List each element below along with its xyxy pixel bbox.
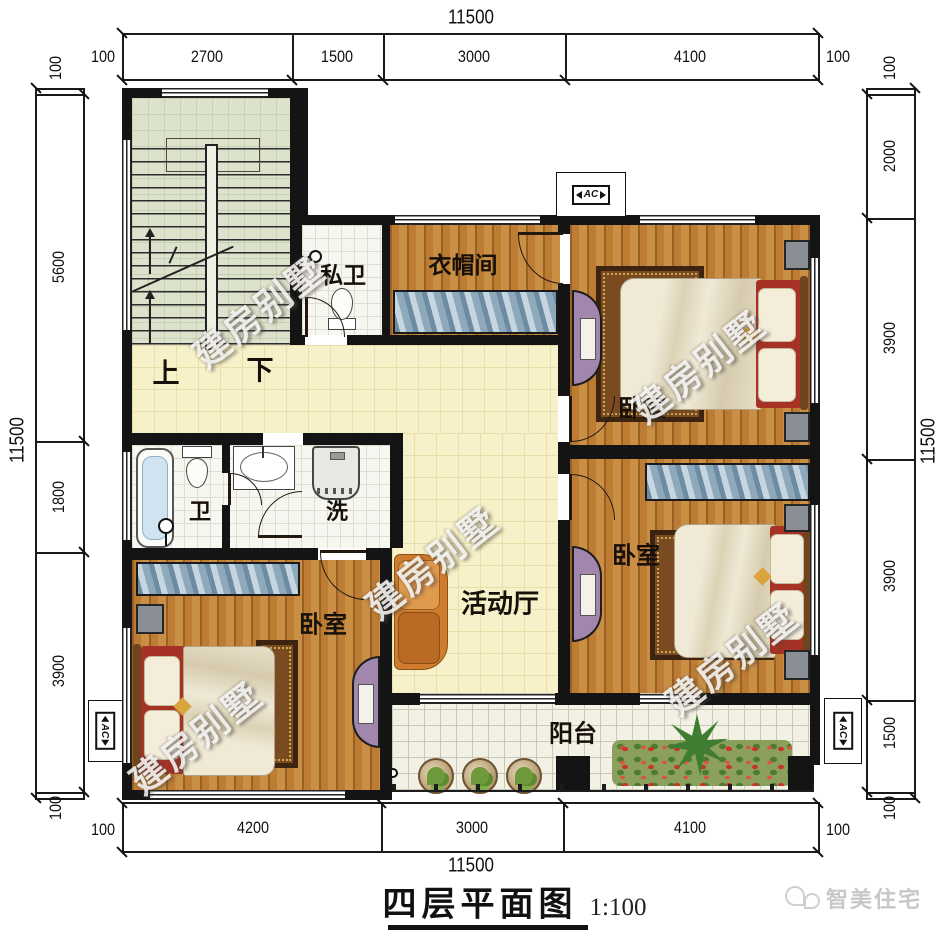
dim-line xyxy=(292,33,294,80)
dim-bottom-3000: 3000 xyxy=(456,818,488,838)
dim-bottom-100r: 100 xyxy=(826,820,850,840)
plant-leaf-icon xyxy=(427,767,445,785)
dim-right-1500: 1500 xyxy=(880,717,900,749)
dim-line xyxy=(818,33,820,80)
dim-top-100r: 100 xyxy=(826,47,850,67)
dim-top-overall: 11500 xyxy=(448,7,494,30)
bedroom3-pillow xyxy=(144,656,180,706)
window-bath-left xyxy=(122,452,132,540)
dim-right-3900a: 3900 xyxy=(880,322,900,354)
floor-plan-page: AC AC AC 上 下 私卫 衣帽间 卧室 卧室 卧室 卫 洗 活动厅 阳台 … xyxy=(0,0,950,940)
page-title: 四层平面图 xyxy=(383,877,578,926)
wall-privatebath-east xyxy=(382,225,390,337)
dim-top-3000: 3000 xyxy=(458,47,490,67)
bedroom2-nightstand xyxy=(784,504,810,532)
dim-right-100t: 100 xyxy=(880,56,900,80)
label-bedroom3: 卧室 xyxy=(299,605,347,640)
wall-bath-north-seg xyxy=(122,433,263,445)
ac-icon: AC xyxy=(572,185,610,205)
label-stair-up: 上 xyxy=(153,352,180,391)
wall-bath-divider-seg xyxy=(222,445,230,473)
wall-corridor-seg3 xyxy=(558,520,570,693)
floor-drain-icon xyxy=(158,518,174,534)
dim-line xyxy=(122,851,820,853)
logo-text: 智美住宅 xyxy=(826,882,922,914)
dim-line xyxy=(83,88,85,800)
dim-bottom-4200: 4200 xyxy=(237,818,269,838)
label-bath: 卫 xyxy=(189,494,211,526)
label-balcony: 阳台 xyxy=(549,714,597,749)
dim-line xyxy=(35,94,83,96)
dim-line xyxy=(122,802,124,852)
sliding-door-hall-balcony xyxy=(420,694,555,704)
dim-right-overall: 11500 xyxy=(918,418,941,464)
washing-machine-panel xyxy=(330,452,345,460)
dim-bottom-overall: 11500 xyxy=(448,855,494,878)
dim-right-100b: 100 xyxy=(880,796,900,820)
ac-unit-right: AC xyxy=(824,698,862,764)
dim-line xyxy=(866,459,914,461)
ac-icon-left: AC xyxy=(96,712,116,750)
bath-door-leaf xyxy=(228,473,231,505)
wall-cloakroom-east-seg2 xyxy=(558,284,570,345)
label-hall: 活动厅 xyxy=(461,584,539,621)
balcony-railing xyxy=(392,784,814,792)
dim-line xyxy=(818,802,820,852)
wall-bedroom2-south-seg xyxy=(570,693,640,705)
window-stair-top xyxy=(162,88,268,98)
wall-hall-south-seg2 xyxy=(555,693,570,705)
plant-leaf-icon3 xyxy=(515,767,533,785)
bedroom3-door-leaf xyxy=(320,550,366,553)
dim-top-100l: 100 xyxy=(91,47,115,67)
dim-right-3900b: 3900 xyxy=(880,560,900,592)
dim-line xyxy=(122,79,820,81)
dim-line xyxy=(866,700,914,702)
wall-hall-south-seg xyxy=(392,693,420,705)
window-bedroom1-top xyxy=(640,215,755,225)
wall-cloakroom-south xyxy=(390,335,560,345)
washbasin-tap xyxy=(262,446,264,458)
dim-line xyxy=(35,552,83,554)
window-bedroom1-right xyxy=(810,258,820,403)
dim-line xyxy=(866,218,914,220)
hall-sofa-cushion2 xyxy=(398,612,440,664)
dim-bottom-4100: 4100 xyxy=(674,818,706,838)
title-scale: 1:100 xyxy=(590,894,647,922)
dim-left-1800: 1800 xyxy=(49,481,69,513)
wall-stair-east xyxy=(290,88,308,225)
dim-line xyxy=(122,33,124,80)
wall-bedroom3-north-seg xyxy=(122,548,318,560)
bedroom1-headboard xyxy=(800,276,808,410)
dim-line xyxy=(122,802,820,804)
label-stair-down: 下 xyxy=(247,349,274,388)
wall-bedrooms-divider xyxy=(570,445,810,459)
dim-line xyxy=(866,94,914,96)
stair-arrow-up-line xyxy=(149,236,151,274)
dim-line xyxy=(35,792,83,794)
toilet-tank xyxy=(182,446,212,458)
dim-left-overall: 11500 xyxy=(7,417,30,463)
bedroom3-nightstand xyxy=(136,604,164,634)
label-laundry: 洗 xyxy=(326,494,348,526)
ac-unit-top: AC xyxy=(556,172,626,217)
dim-line xyxy=(563,802,565,852)
bedroom1-pillow2 xyxy=(758,348,796,402)
wall-bath-divider-seg2 xyxy=(222,505,230,548)
dim-line xyxy=(381,802,383,852)
dim-line xyxy=(914,88,916,800)
dim-line xyxy=(35,441,83,443)
dim-left-5600: 5600 xyxy=(49,251,69,283)
wall-bath-north-seg2 xyxy=(303,433,403,445)
window-bedroom2-right xyxy=(810,505,820,655)
label-cloakroom: 衣帽间 xyxy=(429,246,498,280)
dim-left-3900: 3900 xyxy=(49,655,69,687)
dim-right-2000: 2000 xyxy=(880,140,900,172)
cloakroom-wardrobe xyxy=(393,290,558,334)
bedroom2-pillow xyxy=(770,534,804,584)
dim-line xyxy=(866,88,914,90)
floor-drain-stem xyxy=(165,534,167,546)
dim-left-100b: 100 xyxy=(46,796,66,820)
ac-icon-right: AC xyxy=(833,712,853,750)
bedroom2-cabinet-inset xyxy=(580,574,596,616)
bedroom1-door-leaf xyxy=(569,396,572,442)
bedroom3-cabinet-inset xyxy=(358,684,374,724)
window-bedroom3-left xyxy=(122,628,132,763)
dim-line xyxy=(35,88,83,90)
bedroom2-door-leaf xyxy=(569,474,572,520)
label-bedroom2: 卧室 xyxy=(612,536,660,571)
wall-corridor-seg xyxy=(558,345,570,396)
plant-leaf-icon2 xyxy=(471,767,489,785)
bedroom1-cabinet-inset xyxy=(580,318,596,360)
logo-bubble-icon xyxy=(785,886,805,906)
stair-arrow-up2-line xyxy=(149,298,151,344)
logo-bubble-icon2 xyxy=(804,893,820,909)
window-bedroom3-bottom xyxy=(150,790,345,800)
window-stair-left xyxy=(122,140,132,330)
title-underline xyxy=(388,925,588,930)
bedroom1-nightstand xyxy=(784,240,810,270)
dim-top-4100: 4100 xyxy=(674,47,706,67)
dim-bottom-100l: 100 xyxy=(91,820,115,840)
wall-laundry-east xyxy=(390,433,403,548)
window-cloakroom-top xyxy=(395,215,540,225)
dim-line xyxy=(565,33,567,80)
dim-line xyxy=(35,88,37,800)
dim-top-1500: 1500 xyxy=(321,47,353,67)
dim-top-2700: 2700 xyxy=(191,47,223,67)
laundry-door-leaf xyxy=(258,535,302,538)
dim-line xyxy=(383,33,385,80)
dim-line xyxy=(122,33,820,35)
dim-left-100t: 100 xyxy=(46,56,66,80)
ac-unit-left: AC xyxy=(88,700,123,762)
bedroom2-nightstand2 xyxy=(784,650,810,680)
bedroom1-nightstand2 xyxy=(784,412,810,442)
bedroom3-wardrobe xyxy=(136,562,300,596)
wall-privatebath-south-seg xyxy=(290,335,305,345)
dim-line xyxy=(866,792,914,794)
wall-corridor-seg2 xyxy=(558,442,570,474)
dim-line xyxy=(866,88,868,800)
cloakroom-door-leaf xyxy=(518,232,563,235)
wall-bottom-seg2 xyxy=(345,790,392,800)
bedroom2-wardrobe xyxy=(645,463,810,501)
